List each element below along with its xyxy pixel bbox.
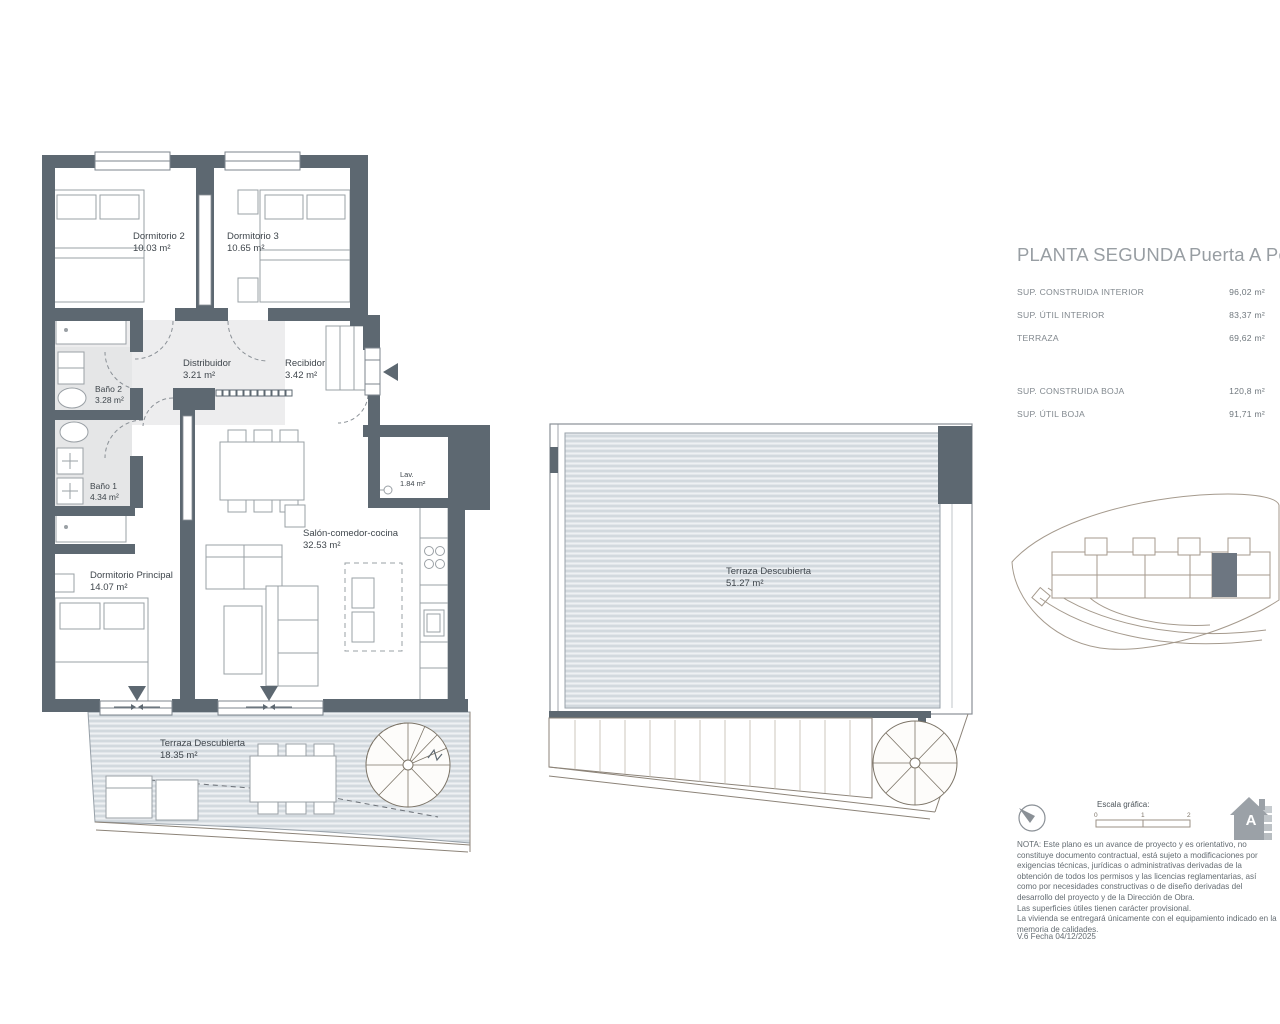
- entrance-arrow-icon: [383, 363, 398, 381]
- surface-row: SUP. ÚTIL INTERIOR 83,37 m²: [1017, 310, 1265, 320]
- note-paragraph: NOTA: Este plano es un avance de proyect…: [1017, 840, 1277, 904]
- label-terraza-superior: Terraza Descubierta 51.27 m²: [726, 566, 811, 589]
- scale-tick: 2: [1187, 812, 1191, 819]
- label-dormitorio3: Dormitorio 3 10.65 m²: [227, 231, 279, 254]
- surface-row: SUP. CONSTRUIDA BOJA 120,8 m²: [1017, 386, 1265, 396]
- label-bano1: Baño 1 4.34 m²: [90, 481, 119, 502]
- version-date: V.6 Fecha 04/12/2025: [1017, 932, 1096, 941]
- site-plan: [1012, 494, 1279, 649]
- surface-row: TERRAZA 69,62 m²: [1017, 333, 1265, 343]
- label-dormitorio2: Dormitorio 2 10.03 m²: [133, 231, 185, 254]
- spiral-stair-upper: [873, 721, 957, 805]
- title-floor: PLANTA SEGUNDA: [1017, 244, 1186, 265]
- spiral-stair-main: [366, 723, 450, 807]
- note-paragraph: Las superficies útiles tienen carácter p…: [1017, 904, 1277, 915]
- label-dormitorio-principal: Dormitorio Principal 14.07 m²: [90, 570, 173, 593]
- scale-label: Escala gráfica:: [1097, 800, 1149, 809]
- surface-table: SUP. CONSTRUIDA INTERIOR 96,02 m² SUP. Ú…: [1017, 287, 1265, 432]
- shelf-row: [216, 390, 292, 396]
- floor-plan-page: Dormitorio 2 10.03 m² Dormitorio 3 10.65…: [0, 0, 1280, 1024]
- surface-row: SUP. ÚTIL BOJA 91,71 m²: [1017, 409, 1265, 419]
- label-bano2: Baño 2 3.28 m²: [95, 384, 124, 405]
- label-recibidor: Recibidor 3.42 m²: [285, 358, 325, 381]
- disclaimer-note: NOTA: Este plano es un avance de proyect…: [1017, 840, 1277, 935]
- label-salon: Salón-comedor-cocina 32.53 m²: [303, 528, 398, 551]
- scale-tick: 1: [1141, 812, 1145, 819]
- north-arrow-icon: [1019, 805, 1045, 831]
- energy-rating-letter: A: [1240, 812, 1262, 829]
- page-title: PLANTA SEGUNDAPuerta A Portal: [1017, 244, 1280, 266]
- main-terrace: [88, 712, 470, 852]
- highlighted-unit: [1212, 553, 1237, 597]
- upper-terrace-plan: [549, 424, 972, 819]
- scale-bar: [1096, 820, 1190, 827]
- scale-tick: 0: [1094, 812, 1098, 819]
- surface-table-gap: [1017, 356, 1265, 386]
- label-lavadero: Lav. 1.84 m²: [400, 470, 425, 488]
- label-distribuidor: Distribuidor 3.21 m²: [183, 358, 231, 381]
- title-unit: Puerta A Portal: [1189, 244, 1280, 265]
- surface-row: SUP. CONSTRUIDA INTERIOR 96,02 m²: [1017, 287, 1265, 297]
- label-terraza-baja: Terraza Descubierta 18.35 m²: [160, 738, 245, 761]
